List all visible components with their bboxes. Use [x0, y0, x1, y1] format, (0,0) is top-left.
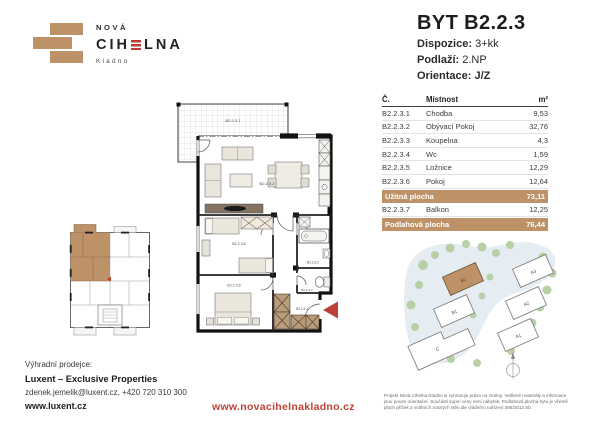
kitchen	[319, 140, 330, 206]
cell-room: Koupelna	[426, 136, 514, 145]
table-row: B2.2.3.5Ložnice12,29	[382, 161, 548, 175]
brick-icon	[50, 23, 83, 35]
cell-no: B2.2.3.6	[382, 177, 426, 186]
apartment-title: BYT B2.2.3	[417, 12, 525, 35]
site-plan: B2 B1 A3 A2 A1 C	[393, 233, 571, 383]
logo-word-cihelna: CIHLNA	[96, 37, 183, 53]
hall-label: B2.2.3.1	[296, 307, 308, 311]
desk	[202, 240, 210, 256]
balcony-label: B2.2.3.7	[226, 118, 242, 123]
cell-room: Obývací Pokoj	[426, 122, 514, 131]
table-row: B2.2.3.2Obývací Pokoj32,76	[382, 121, 548, 135]
table-header-row: Č. Místnost m²	[382, 93, 548, 107]
cell-area: 32,76	[514, 122, 548, 131]
table-row: B2.2.3.1Chodba9,53	[382, 107, 548, 121]
building-floor-overview	[57, 217, 163, 343]
floor-area-value: 76,44	[526, 220, 545, 229]
room-table: Č. Místnost m² B2.2.3.1Chodba9,53 B2.2.3…	[382, 93, 548, 232]
toilet-tank	[324, 277, 330, 287]
table-row-balcony: B2.2.3.7Balkon12,25	[382, 204, 548, 218]
logo-e-bars-icon	[131, 40, 141, 51]
entrance-arrow-icon	[323, 302, 338, 319]
flyer-page: NOVÁ CIHLNA Kladno BYT B2.2.3 Dispozice:…	[0, 0, 600, 423]
sink-icon	[322, 184, 327, 189]
cooktop-icon	[224, 206, 246, 211]
usable-area-value: 73,11	[527, 192, 545, 201]
apartment-header: BYT B2.2.3 Dispozice: 3+kk Podlaží: 2.NP…	[417, 12, 525, 83]
brick-icon	[50, 51, 83, 63]
cell-room: Pokoj	[426, 177, 514, 186]
cell-area: 12,64	[514, 177, 548, 186]
chair	[301, 178, 309, 187]
col-header-room: Místnost	[426, 95, 514, 104]
project-website-link[interactable]: www.novacihelnakladno.cz	[212, 401, 355, 413]
seller-name: Luxent – Exclusive Properties	[25, 372, 187, 387]
coffee-table	[230, 174, 252, 187]
kitchen-island	[205, 204, 263, 213]
seller-contact: zdenek.jemelik@luxent.cz, +420 720 310 3…	[25, 387, 187, 400]
cell-area: 12,25	[514, 205, 548, 214]
cell-area: 1,59	[514, 150, 548, 159]
cell-no: B2.2.3.4	[382, 150, 426, 159]
cell-room: Balkon	[426, 205, 514, 214]
wc-label: B2.2.3.4	[301, 288, 313, 292]
pillow	[206, 219, 213, 233]
spec-dispozice: Dispozice: 3+kk	[417, 38, 525, 51]
col-header-number: Č.	[382, 95, 426, 104]
col-header-area: m²	[514, 95, 548, 104]
logo-word-nova: NOVÁ	[96, 23, 183, 32]
room6-label: B2.2.3.6	[232, 242, 245, 246]
pillow	[235, 318, 249, 325]
cell-room: Ložnice	[426, 163, 514, 172]
project-logo: NOVÁ CIHLNA Kladno	[33, 22, 213, 66]
usable-area-label: Užitná plocha	[385, 192, 434, 201]
toilet-icon	[315, 277, 324, 288]
spec-label: Dispozice:	[417, 38, 472, 50]
seller-website-link[interactable]: www.luxent.cz	[25, 399, 187, 413]
logo-lna: LNA	[144, 37, 183, 53]
spec-value: J/Z	[474, 70, 490, 82]
table-row: B2.2.3.6Pokoj12,64	[382, 175, 548, 189]
building-a1: A1	[497, 319, 538, 352]
cell-no: B2.2.3.1	[382, 109, 426, 118]
table-row: B2.2.3.3Koupelna4,3	[382, 134, 548, 148]
logo-cih: CIH	[96, 37, 130, 53]
disclaimer-text: Projekt Nová Cihelna Kladno si vyhrazuje…	[384, 393, 570, 411]
highlighted-balcony	[74, 225, 96, 233]
cell-area: 4,3	[514, 136, 548, 145]
usable-area-row: Užitná plocha73,11	[382, 190, 548, 203]
bath-label: B2.2.3.3	[307, 261, 319, 265]
nightstand	[253, 318, 260, 325]
floor-area-row: Podlahová plocha76,44	[382, 218, 548, 231]
spec-label: Podlaží:	[417, 54, 459, 66]
table-row: B2.2.3.4Wc1,59	[382, 148, 548, 162]
floor-area-label: Podlahová plocha	[385, 220, 449, 229]
spec-label: Orientace:	[417, 70, 471, 82]
living-label: B2.2.3.2	[260, 181, 276, 186]
spec-podlazi: Podlaží: 2.NP	[417, 54, 525, 67]
cell-area: 9,53	[514, 109, 548, 118]
bedroom-label: B2.2.3.5	[227, 284, 240, 288]
cell-no: B2.2.3.3	[382, 136, 426, 145]
cell-area: 12,29	[514, 163, 548, 172]
dining-table	[275, 162, 302, 188]
spec-value: 2.NP	[462, 54, 486, 66]
cell-room: Chodba	[426, 109, 514, 118]
nightstand	[207, 318, 214, 325]
spec-value: 3+kk	[475, 38, 499, 50]
cell-no: B2.2.3.2	[382, 122, 426, 131]
logo-city: Kladno	[96, 58, 183, 65]
logo-text: NOVÁ CIHLNA Kladno	[96, 23, 183, 65]
pillow	[266, 259, 273, 272]
chair	[301, 165, 309, 174]
cell-no: B2.2.3.7	[382, 205, 426, 214]
spec-orientace: Orientace: J/Z	[417, 70, 525, 83]
cell-no: B2.2.3.5	[382, 163, 426, 172]
chair	[268, 165, 276, 174]
brick-icon	[33, 37, 72, 49]
floor-plan: B2.2.3.7	[135, 88, 360, 352]
compass-icon	[507, 352, 520, 379]
pillow	[218, 318, 232, 325]
seller-label: Výhradní prodejce:	[25, 359, 187, 372]
seller-block: Výhradní prodejce: Luxent – Exclusive Pr…	[25, 359, 187, 414]
cell-room: Wc	[426, 150, 514, 159]
